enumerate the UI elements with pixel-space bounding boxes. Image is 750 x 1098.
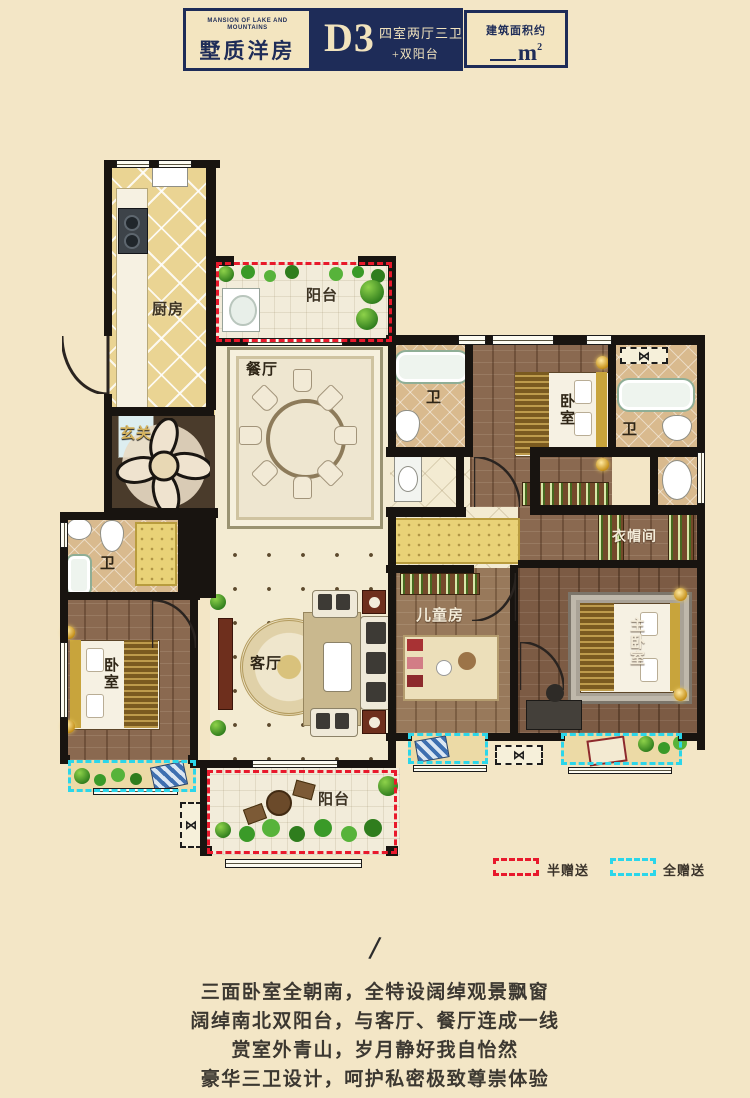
window — [225, 859, 362, 868]
description-line: 赏室外青山，岁月静好我自怡然 — [0, 1036, 750, 1065]
wall — [608, 345, 616, 447]
wall — [465, 345, 473, 447]
kitchen-label: 厨房 — [152, 298, 184, 319]
area-unit: m — [518, 40, 537, 65]
dining-label: 餐厅 — [246, 358, 278, 379]
wall-lamp-icon — [596, 458, 609, 471]
kids-wardrobe — [400, 573, 480, 595]
window — [458, 335, 486, 345]
master-door-arc — [520, 642, 564, 690]
wall — [104, 160, 112, 336]
area-superscript: 2 — [537, 42, 542, 53]
bedroom-left-bay-full-gift-outline — [68, 760, 196, 792]
living-label: 客厅 — [250, 652, 282, 673]
kitchen-sink — [152, 165, 188, 187]
wall — [518, 733, 565, 741]
window — [568, 767, 672, 774]
window — [413, 765, 487, 772]
unit-layout: 四室两厅三卫 — [379, 23, 463, 42]
window — [492, 335, 554, 345]
area-value: m2 — [467, 40, 565, 66]
description-block: / 三面卧室全朝南，全特设阔绰观景飘窗 阔绰南北双阳台，与客厅、餐厅连成一线 赏… — [0, 930, 750, 1094]
wall — [186, 508, 216, 598]
burner-icon — [124, 233, 140, 249]
unit-code: D3 — [324, 14, 375, 61]
wall-lamp-icon — [674, 688, 687, 701]
wall — [206, 160, 216, 410]
wall — [530, 505, 705, 515]
wall — [386, 507, 466, 517]
ac-unit-icon: ⋈ — [180, 802, 202, 848]
window — [116, 160, 150, 168]
hall-runner-mat — [392, 518, 520, 564]
area-box: 建筑面积约 m2 — [464, 10, 568, 68]
window — [158, 160, 192, 168]
kids-pillow — [407, 657, 423, 669]
legend-half-gift-label: 半赠送 — [547, 860, 589, 879]
kids-room-door-arc — [472, 573, 516, 621]
coffee-table — [323, 642, 352, 692]
side-table — [362, 710, 386, 734]
sofa-cushion — [366, 652, 386, 674]
teddy-toy-icon — [458, 652, 476, 670]
ac-unit-icon: ⋈ — [495, 745, 543, 765]
dining-chair — [334, 426, 357, 445]
bed-headboard — [70, 640, 81, 728]
south-balcony-label: 阳台 — [318, 788, 350, 809]
north-balcony-label: 阳台 — [306, 284, 338, 305]
description-line: 三面卧室全朝南，全特设阔绰观景飘窗 — [0, 978, 750, 1007]
bed-headboard — [596, 372, 607, 455]
window — [586, 335, 612, 345]
window — [60, 642, 68, 718]
kids-bay-full-gift-outline — [408, 733, 488, 764]
corner-sink — [66, 518, 92, 540]
entry-door-arc — [62, 336, 110, 394]
bath-right-label: 卫 — [622, 418, 638, 439]
cloak-wardrobe — [668, 513, 694, 565]
wall — [485, 733, 518, 741]
wall — [104, 407, 214, 416]
wall — [678, 733, 705, 741]
wall — [530, 450, 540, 512]
bathtub — [66, 554, 92, 596]
ac-unit-icon: ⋈ — [620, 347, 668, 364]
master-bedroom-label: 主卧室 — [630, 618, 648, 668]
wall-lamp-icon — [674, 588, 687, 601]
area-label: 建筑面积约 — [467, 22, 565, 38]
wall — [518, 560, 705, 568]
floor-plan: ⋈ ⋈ ⋈ — [60, 160, 710, 875]
armchair-cushion — [335, 713, 349, 729]
area-blank-line — [490, 59, 516, 61]
description-line: 阔绰南北双阳台，与客厅、餐厅连成一线 — [0, 1007, 750, 1036]
burner-icon — [124, 215, 140, 231]
wall — [650, 452, 658, 510]
unit-balconies: +双阳台 — [392, 45, 439, 62]
cloakroom-label: 衣帽间 — [612, 526, 657, 546]
living-plant-icon — [210, 720, 226, 736]
north-balcony-half-gift-outline — [216, 262, 392, 342]
sink-basin — [662, 460, 692, 500]
bedroom-top-label: 卧室 — [560, 394, 578, 427]
wall — [386, 565, 474, 573]
master-blanket — [580, 603, 614, 691]
legend-half-gift-swatch — [493, 858, 539, 876]
pillow — [86, 648, 104, 672]
wall — [198, 760, 252, 768]
bed-blanket — [124, 640, 158, 728]
bathtub — [617, 378, 695, 412]
bath-left-label: 卫 — [100, 552, 116, 573]
sliding-door — [252, 760, 338, 768]
wall — [338, 760, 396, 768]
wall — [388, 512, 396, 768]
foyer-label: 玄关 — [120, 422, 152, 443]
bedroom-top-door-arc — [474, 457, 520, 507]
bedroom-left-door-arc — [152, 600, 196, 648]
dining-chair — [293, 369, 312, 392]
window — [60, 522, 68, 548]
sofa-cushion — [366, 622, 386, 644]
wall — [697, 335, 705, 750]
wall — [60, 512, 186, 520]
floorplan-page: { "header": { "brand_en": "MANSION OF LA… — [0, 0, 750, 1098]
window — [697, 452, 705, 504]
dining-chair — [293, 476, 312, 499]
legend-full-gift-label: 全赠送 — [663, 860, 705, 879]
bath-mat — [135, 522, 177, 586]
south-balcony-half-gift-outline — [207, 770, 397, 854]
bath-top-label: 卫 — [426, 386, 442, 407]
master-headboard — [670, 603, 680, 691]
bed-blanket — [515, 372, 549, 455]
kids-pillow — [407, 639, 423, 651]
brand-english: MANSION OF LAKE AND MOUNTAINS — [186, 18, 309, 32]
master-bay-full-gift-outline — [561, 733, 682, 765]
brand-chinese: 墅质洋房 — [186, 35, 309, 65]
brand-box: MANSION OF LAKE AND MOUNTAINS 墅质洋房 — [183, 8, 312, 71]
armchair-cushion — [318, 594, 332, 610]
armchair-cushion — [316, 713, 330, 729]
wall — [178, 516, 186, 596]
dining-chair — [239, 426, 262, 445]
bathtub — [394, 350, 470, 384]
tv-console — [218, 618, 233, 710]
unit-box: D3 四室两厅三卫 +双阳台 — [312, 8, 463, 71]
kids-pillow — [407, 675, 423, 687]
wall — [456, 452, 464, 512]
wall — [200, 768, 207, 852]
description-line: 豪华三卫设计，呵护私密极致尊崇体验 — [0, 1065, 750, 1094]
slash-divider: / — [368, 930, 383, 969]
bedroom-left-label: 卧室 — [104, 658, 122, 691]
side-table — [362, 590, 386, 614]
desk — [526, 700, 582, 730]
pillow — [86, 694, 104, 718]
sink-basin — [398, 466, 418, 492]
wall — [60, 592, 200, 600]
toy-ball-icon — [436, 660, 452, 676]
sofa-cushion — [366, 682, 386, 702]
legend-full-gift-swatch — [610, 858, 656, 876]
wall — [530, 447, 705, 457]
kids-room-label: 儿童房 — [416, 604, 464, 625]
armchair-cushion — [336, 594, 350, 610]
